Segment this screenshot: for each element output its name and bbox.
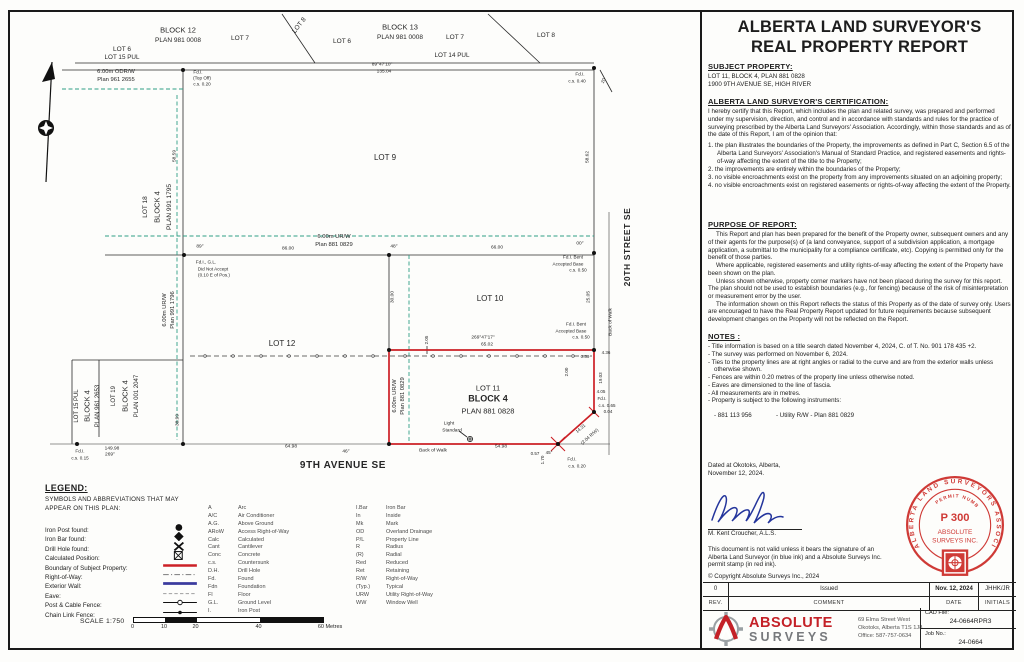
note-item: - The survey was performed on November 6… <box>708 351 1011 359</box>
stamp-permit-number: P 300 <box>940 512 969 524</box>
notes-heading: NOTES : <box>708 332 1011 341</box>
certification-item: 1. the plan illustrates the boundaries o… <box>708 142 1011 165</box>
panel-divider <box>700 10 702 650</box>
scale-tick-label: 40 <box>255 624 261 630</box>
plan-label: Plan 961 2655 <box>97 78 134 84</box>
plan-label: PLAN 981 0008 <box>377 35 423 42</box>
abbreviation: Fl <box>208 592 238 598</box>
abbreviation-meaning: Inside <box>386 513 401 519</box>
validity-text: This document is not valid unless it bea… <box>708 546 888 569</box>
certification-section: ALBERTA LAND SURVEYOR'S CERTIFICATION: I… <box>708 97 1011 190</box>
plan-label: Fd.I., G.L. <box>196 261 216 266</box>
plan-label: BLOCK 4 <box>121 380 129 412</box>
plan-label: BLOCK 4 <box>153 191 161 223</box>
plan-label: 64.98 <box>285 446 297 451</box>
scale-tick-label: 20 <box>192 624 198 630</box>
abbreviation-meaning: Above Ground <box>238 521 273 527</box>
plan-label: 9TH AVENUE SE <box>300 461 386 471</box>
scale-tick-label: 0 <box>131 624 134 630</box>
plan-label: BLOCK 4 <box>83 390 91 422</box>
plan-label: 45° <box>546 451 553 456</box>
firm-address-line1: 69 Elma Street West <box>858 617 922 625</box>
fence-line <box>190 355 592 358</box>
abbreviation: I.Bar <box>356 505 386 511</box>
plan-label: LOT 8 <box>537 33 555 40</box>
plan-label: Accepted Base <box>556 329 587 334</box>
plan-label: 58.59 <box>174 150 179 162</box>
plan-label: 65.02 <box>481 344 493 349</box>
abbreviation-meaning: Concrete <box>238 552 260 558</box>
abbreviation-row: WWWindow Well <box>356 600 433 608</box>
abbreviation-row: CalcCalculated <box>208 537 289 545</box>
abbreviation-meaning: Right-of-Way <box>386 576 418 582</box>
plan-label: c.s. 0.50 <box>569 269 586 274</box>
abbreviation-meaning: Countersunk <box>238 560 269 566</box>
abbreviation-row: G.L.Ground Level <box>208 600 289 608</box>
abbreviation-row: RedReduced <box>356 560 433 568</box>
abbreviation: Fdn <box>208 584 238 590</box>
legend: LEGEND: SYMBOLS AND ABBREVIATIONS THAT M… <box>45 483 405 512</box>
abbreviation-meaning: Retaining <box>386 568 409 574</box>
abbreviation: R <box>356 544 386 550</box>
plan-label: 6.00m UR/W <box>393 379 399 412</box>
plan-label: BLOCK 4 <box>468 395 508 404</box>
abbreviation-row: AArc <box>208 505 289 513</box>
plan-label: Fd.I. <box>193 71 202 76</box>
abbreviation: R/W <box>356 576 386 582</box>
abbreviation-row: InInside <box>356 513 433 521</box>
plan-label: c.s. 0.65 <box>598 403 615 408</box>
abbreviation-row: RetRetaining <box>356 568 433 576</box>
purpose-section: PURPOSE OF REPORT: This Report and plan … <box>708 220 1011 324</box>
abbreviation: D.H. <box>208 568 238 574</box>
plan-label: 66.00 <box>491 247 503 252</box>
abbreviation-row: A/CAir Conditioner <box>208 513 289 521</box>
stamp-logo-square <box>942 549 968 575</box>
plan-label: PLAN 881 0828 <box>462 407 515 415</box>
purpose-paragraph: This Report and plan has been prepared f… <box>708 231 1011 262</box>
plan-label: LOT 19 <box>111 386 117 406</box>
abbreviation: A <box>208 505 238 511</box>
notes-section: NOTES : - Title information is based on … <box>708 332 1011 420</box>
legend-heading: LEGEND: <box>45 483 405 493</box>
plan-label: BLOCK 12 <box>160 26 196 34</box>
plan-label: LOT 9 <box>374 154 396 162</box>
abbreviation-row: MkMark <box>356 521 433 529</box>
abbreviation-row: I.Iron Post <box>208 608 289 616</box>
abbreviation-meaning: Cantilever <box>238 544 263 550</box>
note-item: - Fences are within 0.20 metres of the p… <box>708 374 1011 382</box>
note-item: - Property is subject to the following i… <box>708 397 1011 405</box>
abbreviation-meaning: Air Conditioner <box>238 513 274 519</box>
plan-label: Back of Walk <box>419 450 447 455</box>
certification-item: 4. no visible encroachments exist on reg… <box>708 182 1011 190</box>
plan-label: 86.00 <box>282 248 294 253</box>
absolute-surveys-logo-icon <box>708 611 744 647</box>
abbreviation: OD <box>356 529 386 535</box>
abbreviation-meaning: Mark <box>386 521 398 527</box>
abbreviation-row: D.H.Drill Hole <box>208 568 289 576</box>
plan-label: LOT 14 PUL <box>435 53 470 59</box>
cad-file-value: 24-0664RPR3 <box>925 618 1016 626</box>
abbreviation-meaning: Property Line <box>386 537 419 543</box>
revision-date: Nov. 12, 2024 <box>930 583 979 596</box>
abbreviation-row: R/WRight-of-Way <box>356 576 433 584</box>
plan-label: 6.00m UR/W <box>163 293 169 326</box>
abbreviation-meaning: Access Right-of-Way <box>238 529 289 535</box>
page-title: ALBERTA LAND SURVEYOR'S REAL PROPERTY RE… <box>703 17 1016 57</box>
plan-label: 1.70 <box>541 456 546 465</box>
revision-initials: JHHK/JR <box>979 583 1016 596</box>
abbreviation-meaning: Iron Bar <box>386 505 406 511</box>
plan-label: LOT 18 <box>143 196 150 218</box>
plan-label: Fd.I. Bent <box>563 256 583 261</box>
plan-label: 54.98 <box>495 446 507 451</box>
abbreviation-row: FlFloor <box>208 592 289 600</box>
abbreviation-meaning: Iron Post <box>238 608 260 614</box>
firm-address: 69 Elma Street West Okotoks, Alberta T1S… <box>858 617 922 641</box>
abbreviation: Cant <box>208 544 238 550</box>
utility-right-of-way-lines <box>62 89 594 443</box>
scale-bar-graphic <box>133 617 324 623</box>
abbreviation: (Typ.) <box>356 584 386 590</box>
abbreviation-row: ODOverland Drainage <box>356 529 433 537</box>
copyright-line: © Copyright Absolute Surveys Inc., 2024 <box>708 573 888 581</box>
plan-label: (0.10 E of Pos.) <box>198 274 230 279</box>
plan-label: 20TH STREET SE <box>623 208 632 287</box>
plan-label: PLAN 981 0008 <box>155 38 201 45</box>
plan-label: Plan 881 0829 <box>401 377 407 414</box>
abbreviation-column-1: AArcA/CAir ConditionerA.G.Above GroundAR… <box>208 505 289 615</box>
firm-name-line2: SURVEYS <box>749 631 833 644</box>
note-item: - All measurements are in metres. <box>708 390 1011 398</box>
plan-label: Fd.I. Bent <box>566 323 586 328</box>
plan-label: 0.39 <box>581 355 590 360</box>
abbreviation-row: c.s.Countersunk <box>208 560 289 568</box>
plan-label: 30.00 <box>392 291 397 303</box>
plan-label: Light <box>444 423 454 428</box>
plan-label: PLAN 991 1795 <box>167 184 174 230</box>
plan-label: PLAN 961 2653 <box>95 385 101 427</box>
subject-heading: SUBJECT PROPERTY: <box>708 62 1011 71</box>
abbreviation-meaning: Found <box>238 576 254 582</box>
plan-label: 0.57 <box>531 452 540 457</box>
scale-label: SCALE 1:750 <box>80 618 125 625</box>
job-number-label: Job No.: <box>925 631 1016 638</box>
certification-items: 1. the plan illustrates the boundaries o… <box>708 142 1011 190</box>
plan-label: 25.05 <box>588 291 593 303</box>
note-item: - Title information is based on a title … <box>708 343 1011 351</box>
plan-label: LOT 15 PUL <box>105 55 140 61</box>
plan-label: 135.04 <box>377 71 392 76</box>
plan-label: 38.99 <box>177 414 182 426</box>
abbreviation-row: P/LProperty Line <box>356 537 433 545</box>
abbreviation-row: ConcConcrete <box>208 552 289 560</box>
plan-label: 89° <box>196 246 203 251</box>
certification-item: 3. no visible encroachments exist on the… <box>708 174 1011 182</box>
purpose-paragraphs: This Report and plan has been prepared f… <box>708 231 1011 323</box>
revision-row: 0 Issued Nov. 12, 2024 JHHK/JR <box>703 583 1016 597</box>
abbreviation-meaning: Utility Right-of-Way <box>386 592 433 598</box>
plan-label: Fd.I. <box>597 397 606 402</box>
instrument-description: - Utility R/W - Plan 881 0829 <box>776 412 854 420</box>
purpose-paragraph: Unless shown otherwise, property corner … <box>708 278 1011 301</box>
plan-label: 58.62 <box>587 151 592 163</box>
revision-comment: Issued <box>729 583 930 596</box>
plan-label: 2.05 <box>425 336 430 345</box>
plan-label: 2.00 <box>565 368 570 377</box>
north-arrow-icon <box>38 62 55 182</box>
abbreviation-meaning: Foundation <box>238 584 266 590</box>
plan-label: 00° <box>576 243 583 248</box>
file-info-cell: CAD File: 24-0664RPR3 Job No.: 24-0664 <box>920 608 1016 650</box>
plan-label: LOT 6 <box>113 47 131 54</box>
plan-label: (Top Off) <box>193 77 211 82</box>
validity-note: This document is not valid unless it bea… <box>708 546 888 581</box>
firm-name: ABSOLUTE SURVEYS <box>749 616 833 644</box>
purpose-paragraph: The information shown on this Report ref… <box>708 301 1011 324</box>
surveyor-signature <box>708 484 808 528</box>
plan-label: PLAN 001 2047 <box>134 375 140 417</box>
plan-label: c.s. 0.15 <box>71 456 88 461</box>
firm-name-line1: ABSOLUTE <box>749 616 833 631</box>
abbreviation: URW <box>356 592 386 598</box>
plan-label: Plan 881 0829 <box>315 243 352 249</box>
abbreviation: ARoW <box>208 529 238 535</box>
legend-subtitle: SYMBOLS AND ABBREVIATIONS THAT MAY <box>45 496 405 503</box>
purpose-heading: PURPOSE OF REPORT: <box>708 220 1011 229</box>
abbreviation: Fd. <box>208 576 238 582</box>
plan-label: LOT 6 <box>333 39 351 46</box>
plan-label: c.s. 0.20 <box>193 83 210 88</box>
plan-label: Plan 991 1796 <box>171 291 177 328</box>
plan-label: c.s. 0.50 <box>572 336 589 341</box>
abbreviation-meaning: Overland Drainage <box>386 529 432 535</box>
plan-label: LOT 15 PUL <box>74 389 80 422</box>
abbreviation-row: FdnFoundation <box>208 584 289 592</box>
abbreviation: c.s. <box>208 560 238 566</box>
lot-lines <box>62 14 612 444</box>
plan-label: Standard <box>442 429 461 434</box>
plan-label: 269° <box>105 454 115 459</box>
plan-label: c.s. 0.40 <box>568 80 585 85</box>
real-property-report-sheet: LOT 6BLOCK 12PLAN 981 0008LOT 7LOT 8LOT … <box>0 0 1024 662</box>
permit-stamp: ALBERTA LAND SURVEYORS ASSOCIATION PERMI… <box>901 470 1009 583</box>
firm-block: ABSOLUTE SURVEYS 69 Elma Street West Oko… <box>703 608 1016 650</box>
plan-label: Fd.I. <box>75 450 84 455</box>
plan-label: Back of Walk <box>610 308 615 336</box>
plan-label: c.s. 0.20 <box>568 465 585 470</box>
certification-heading: ALBERTA LAND SURVEYOR'S CERTIFICATION: <box>708 97 1011 106</box>
abbreviation-row: CantCantilever <box>208 544 289 552</box>
plan-label: 89°47'10" <box>372 64 393 69</box>
abbreviation-row: RRadius <box>356 544 433 552</box>
revision-table: 0 Issued Nov. 12, 2024 JHHK/JR REV. COMM… <box>703 582 1016 611</box>
note-item: - Eaves are dimensioned to the line of f… <box>708 382 1011 390</box>
scale-tick-label: 10 <box>161 624 167 630</box>
subject-address: 1900 9TH AVENUE SE, HIGH RIVER <box>708 81 1011 89</box>
firm-address-line2: Okotoks, Alberta T1S 1J8 <box>858 625 922 633</box>
title-line-2: REAL PROPERTY REPORT <box>703 37 1016 57</box>
notes-items: - Title information is based on a title … <box>708 343 1011 405</box>
abbreviation-meaning: Window Well <box>386 600 418 606</box>
stamp-company-line1: ABSOLUTE <box>938 529 973 536</box>
abbreviation-meaning: Reduced <box>386 560 408 566</box>
report-text-panel: ALBERTA LAND SURVEYOR'S REAL PROPERTY RE… <box>703 10 1016 652</box>
certification-item: 2. the improvements are entirely within … <box>708 166 1011 174</box>
abbreviation-meaning: Calculated <box>238 537 264 543</box>
abbreviation: Red <box>356 560 386 566</box>
plan-label: 4.05 <box>597 390 606 395</box>
abbreviation-meaning: Typical <box>386 584 403 590</box>
abbreviation: Ret <box>356 568 386 574</box>
revision-number: 0 <box>703 583 729 596</box>
title-line-1: ALBERTA LAND SURVEYOR'S <box>703 17 1016 37</box>
plan-label: LOT 10 <box>477 295 504 303</box>
abbreviation-row: URWUtility Right-of-Way <box>356 592 433 600</box>
abbreviation: Calc <box>208 537 238 543</box>
abbreviation-row: (R)Radial <box>356 552 433 560</box>
plan-label: LOT 11 <box>476 384 500 392</box>
abbreviation: G.L. <box>208 600 238 606</box>
stamp-company-line2: SURVEYS INC. <box>932 537 978 544</box>
abbreviation-row: I.BarIron Bar <box>356 505 433 513</box>
abbreviation: A/C <box>208 513 238 519</box>
abbreviation-row: Fd.Found <box>208 576 289 584</box>
abbreviation-row: (Typ.)Typical <box>356 584 433 592</box>
cad-file-label: CAD File: <box>925 610 1016 617</box>
instruments-row: - 881 113 956 - Utility R/W - Plan 881 0… <box>708 412 1011 420</box>
certification-intro: I hereby certify that this Report, which… <box>708 108 1011 139</box>
plan-label: 4.36 <box>602 351 611 356</box>
plan-label: LOT 7 <box>231 36 249 43</box>
abbreviation-meaning: Radius <box>386 544 403 550</box>
abbreviation: In <box>356 513 386 519</box>
plan-label: 269°47'17" <box>471 337 494 342</box>
scale-bar: SCALE 1:750 010204060 Metres <box>80 617 324 625</box>
plan-label: 46° <box>342 451 349 456</box>
plan-label: Accepted Base <box>553 262 584 267</box>
purpose-paragraph: Where applicable, registered easements a… <box>708 262 1011 277</box>
abbreviation-meaning: Arc <box>238 505 246 511</box>
abbreviation: Mk <box>356 521 386 527</box>
plan-label: LOT 7 <box>446 35 464 42</box>
abbreviation: I. <box>208 608 238 614</box>
abbreviation-row: A.G.Above Ground <box>208 521 289 529</box>
plan-label: LOT 12 <box>269 340 296 348</box>
plan-label: 48° <box>390 246 397 251</box>
abbreviation-meaning: Radial <box>386 552 402 558</box>
abbreviation: P/L <box>356 537 386 543</box>
abbreviation-column-2: I.BarIron BarInInsideMkMarkODOverland Dr… <box>356 505 433 608</box>
plan-label: Did Not Accept <box>198 267 228 272</box>
plan-label: BLOCK 13 <box>382 23 418 31</box>
abbreviation-meaning: Floor <box>238 592 251 598</box>
abbreviation-meaning: Ground Level <box>238 600 271 606</box>
abbreviation: (R) <box>356 552 386 558</box>
instrument-number: - 881 113 956 <box>714 412 776 420</box>
plan-label: Fd.I. <box>567 458 576 463</box>
abbreviation-row: ARoWAccess Right-of-Way <box>208 529 289 537</box>
abbreviation: Conc <box>208 552 238 558</box>
abbreviation: A.G. <box>208 521 238 527</box>
firm-phone: Office: 587-757-0634 <box>858 633 922 641</box>
abbreviation: WW <box>356 600 386 606</box>
plan-label: 6.00m UR/W <box>317 235 350 241</box>
subject-property-section: SUBJECT PROPERTY: LOT 11, BLOCK 4, PLAN … <box>708 62 1011 89</box>
plan-label: 6.00m ODR/W <box>97 70 135 76</box>
plan-label: Fd.I. <box>575 73 584 78</box>
survey-markers <box>75 66 596 446</box>
note-item: - Ties to the property lines are at righ… <box>708 359 1011 374</box>
plan-label: 0.04 <box>604 410 613 415</box>
scale-tick-label: 60 Metres <box>318 624 342 630</box>
subject-lot: LOT 11, BLOCK 4, PLAN 881 0828 <box>708 73 1011 81</box>
job-number-value: 24-0664 <box>925 639 1016 647</box>
abbreviation-meaning: Drill Hole <box>238 568 260 574</box>
plan-label: 19.03 <box>599 372 604 383</box>
